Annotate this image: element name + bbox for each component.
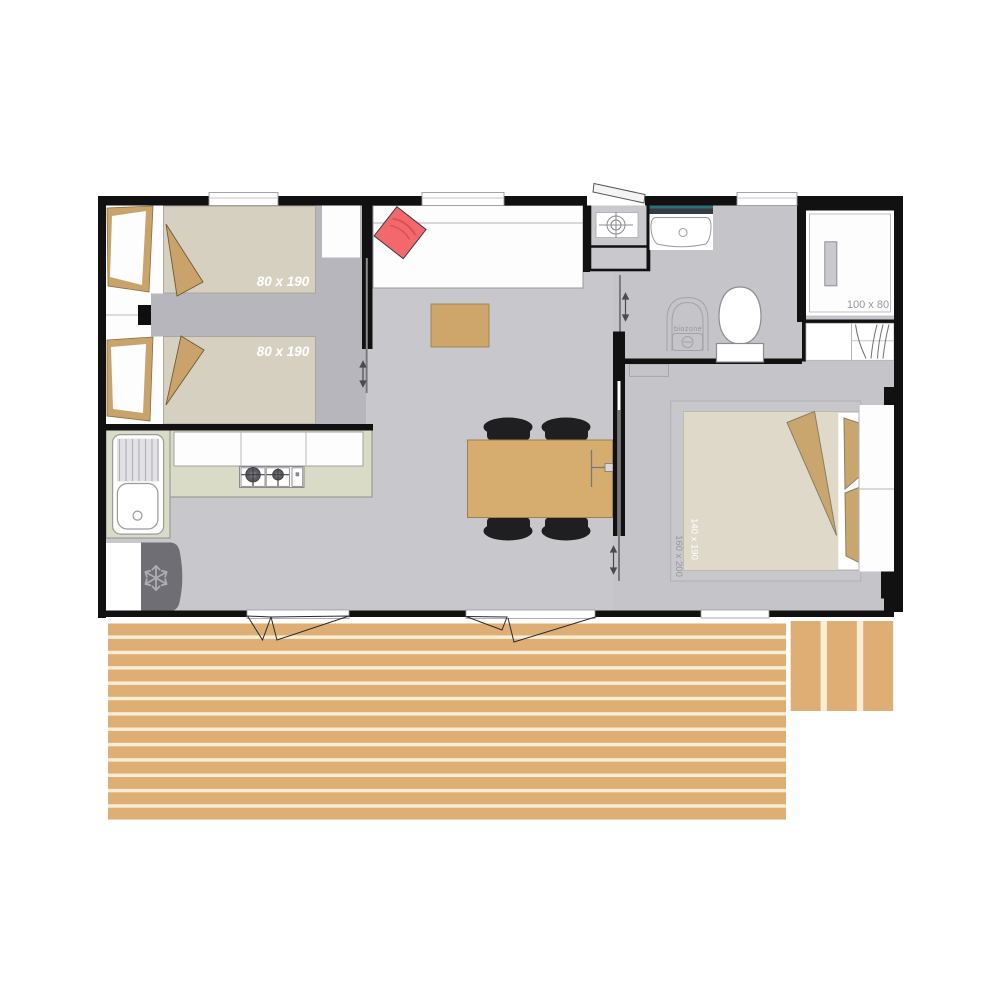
- svg-text:100 x 80: 100 x 80: [847, 299, 889, 311]
- svg-text:biozone: biozone: [674, 326, 702, 333]
- svg-text:140 x 190: 140 x 190: [689, 518, 700, 560]
- svg-text:80 x 190: 80 x 190: [257, 344, 310, 359]
- svg-text:160 x 200: 160 x 200: [673, 535, 684, 577]
- svg-text:80 x 190: 80 x 190: [257, 274, 310, 289]
